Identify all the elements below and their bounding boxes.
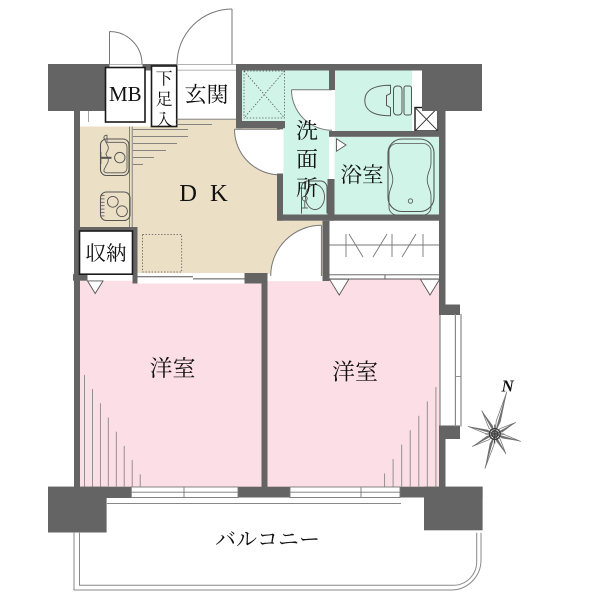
svg-text:DK: DK bbox=[179, 180, 240, 207]
svg-text:MB: MB bbox=[109, 82, 142, 106]
svg-text:N: N bbox=[501, 377, 515, 396]
